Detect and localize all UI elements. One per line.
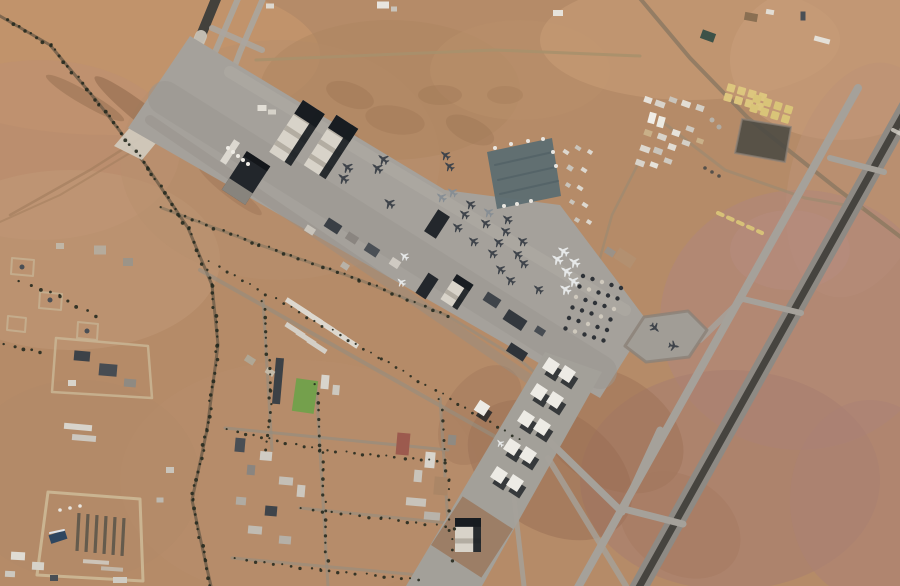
structures-rect: [391, 7, 397, 12]
structures-c: [551, 150, 555, 154]
structures-c: [502, 204, 506, 208]
structures-rect: [260, 451, 273, 461]
structures-c: [554, 164, 558, 168]
structures-rect: [801, 12, 806, 21]
structures-rect: [279, 535, 292, 544]
structures-rect: [5, 571, 15, 578]
structures-c: [710, 170, 714, 174]
structures-rect: [99, 363, 118, 377]
structures-c: [48, 298, 53, 303]
structures-rect: [448, 435, 457, 446]
structures-rect: [332, 385, 340, 396]
structures-rect: [320, 375, 329, 390]
airbase-overhead-view: [0, 0, 900, 586]
structures-c: [78, 504, 82, 508]
structures-rect: [56, 243, 64, 249]
structures-rect: [94, 246, 106, 255]
structures-rect: [32, 562, 44, 571]
structures-c: [541, 137, 545, 141]
structures-rect: [268, 110, 276, 115]
structures-c: [703, 166, 707, 170]
structures-c: [68, 506, 72, 510]
structures-rect: [396, 432, 411, 455]
terrain-ell: [418, 85, 462, 105]
structures-rect: [247, 465, 256, 476]
structures-hangar: [455, 518, 481, 552]
structures-rect: [68, 380, 76, 386]
satellite-image-airbase: [0, 0, 900, 586]
structures-rect: [50, 575, 58, 581]
structures-rect: [433, 476, 449, 495]
structures-c: [710, 118, 715, 123]
structures-rect: [123, 258, 133, 266]
structures-rect: [11, 552, 25, 561]
structures-c: [526, 139, 530, 143]
structures-rect: [236, 497, 247, 506]
structures-rect: [553, 10, 563, 16]
structures-c: [515, 202, 519, 206]
structures-rect: [166, 467, 174, 473]
structures-c: [529, 199, 533, 203]
structures-rect: [74, 350, 91, 361]
structures-rect: [124, 378, 137, 387]
structures-rect: [248, 525, 263, 534]
structures-c: [85, 329, 90, 334]
structures-rect: [157, 498, 164, 503]
structures-rect: [234, 438, 245, 453]
structures-c: [509, 142, 513, 146]
structures-c: [493, 146, 497, 150]
terrain-ell: [487, 86, 523, 104]
structures-rect: [265, 505, 278, 516]
structures-c: [241, 158, 245, 162]
structures-c: [717, 174, 721, 178]
structures-rect: [258, 105, 267, 111]
structures-rect: [279, 476, 294, 485]
structures-c: [231, 150, 235, 154]
structures-c: [246, 162, 250, 166]
structures-c: [717, 125, 722, 130]
structures-c: [58, 508, 62, 512]
structures-rect: [296, 485, 305, 498]
structures-rect: [113, 577, 127, 583]
structures-c: [226, 146, 230, 150]
structures-rect: [377, 2, 389, 9]
structures-c: [20, 265, 25, 270]
structures-c: [236, 154, 240, 158]
structures-rect: [424, 511, 441, 520]
structures-rect: [413, 470, 422, 483]
structures-rect: [266, 4, 274, 9]
